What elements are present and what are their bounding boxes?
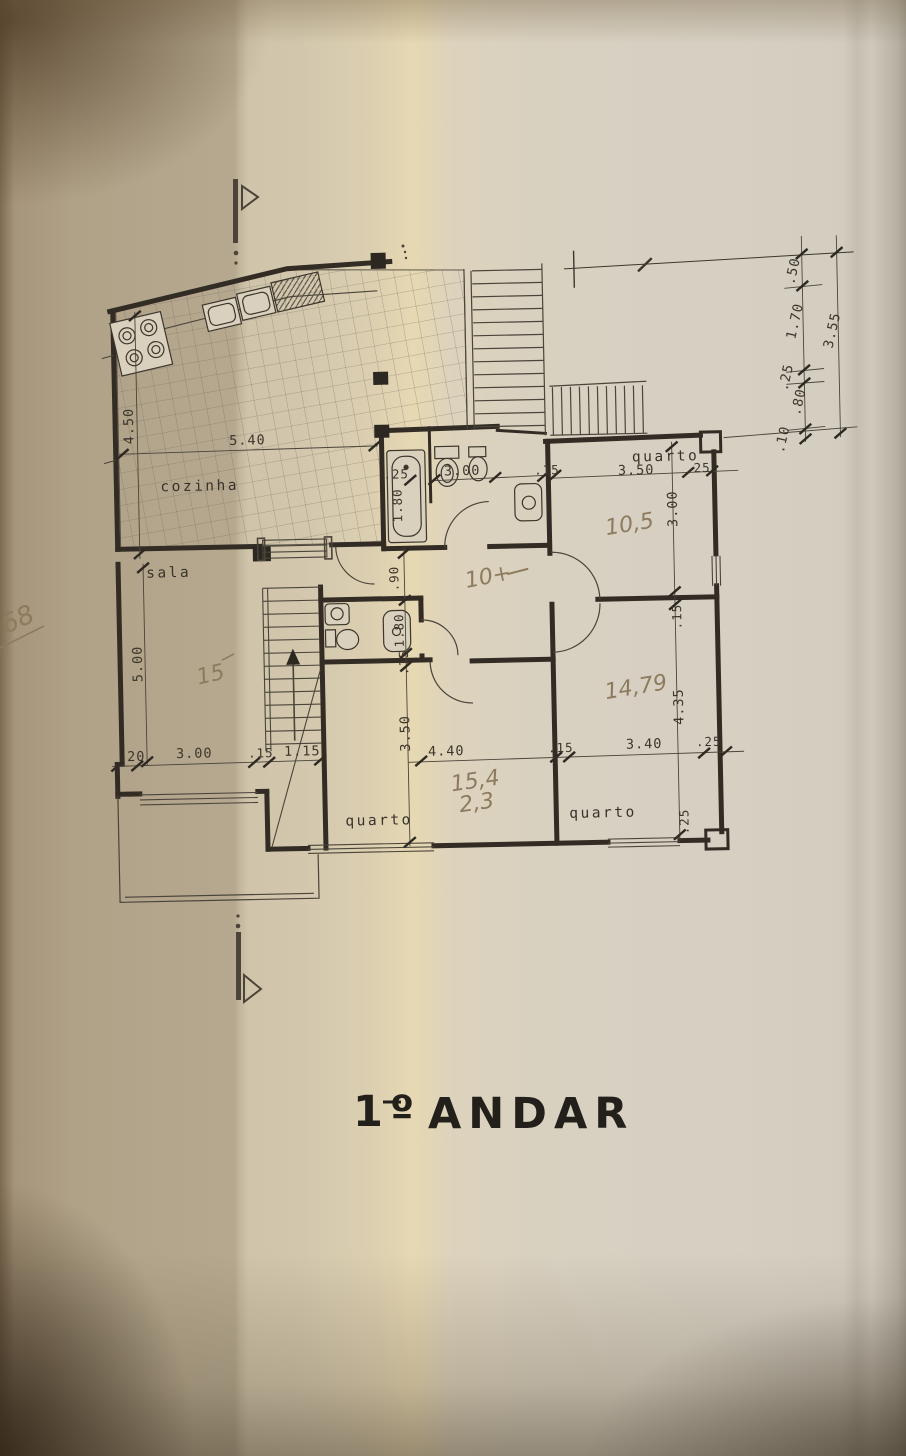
dim-side-chain-0: .50 (782, 256, 804, 286)
dim-bedroom-top-wall-bottom: .15 (669, 604, 685, 630)
dim-chain-left-3: 1.15 (284, 743, 321, 760)
note-living: 15 (194, 660, 227, 691)
title-main: ANDAR (428, 1089, 634, 1139)
room-label-living: sala (146, 565, 191, 582)
scanned-floor-plan-photo: cozinha sala quarto quarto quarto 4.50 5… (0, 0, 906, 1456)
note-bedroom-right: 14,79 (603, 670, 669, 705)
dim-bath-recess: .25 (383, 466, 409, 482)
dim-chain-left-2: .15 (248, 745, 274, 761)
terrace-railing (549, 381, 647, 435)
floor-plan-drawing: cozinha sala quarto quarto quarto 4.50 5… (0, 0, 906, 1456)
dim-bath-tub: 1.80 (389, 488, 405, 522)
room-label-bedroom-right: quarto (569, 805, 637, 822)
note-bedroom-left-2: 2,3 (458, 788, 496, 818)
dim-kitchen-width: 5.40 (229, 432, 266, 449)
fold-mark-bottom (236, 914, 261, 1002)
fold-mark-top (233, 179, 258, 265)
dim-wc-wall: .15 (396, 649, 412, 675)
dim-wc-length: 1.80 (391, 613, 407, 647)
stair-direction-arrow (286, 649, 300, 665)
dim-hall-width: .90 (386, 566, 402, 592)
dim-bedroom-top-wall-right: .25 (685, 460, 711, 476)
dim-bath-wall: .15 (534, 462, 560, 478)
dim-living-depth: 5.00 (130, 646, 147, 683)
room-label-kitchen: cozinha (160, 478, 239, 496)
dim-bath-width: 3.00 (444, 463, 481, 480)
note-margin: 68 (0, 600, 39, 641)
title-prefix: 1º (353, 1087, 421, 1137)
room-label-bedroom-left: quarto (345, 812, 413, 829)
dim-bedroom-top-width: 3.50 (618, 462, 655, 479)
hall-washbasin (514, 483, 542, 521)
dim-bedroom-right-wall-bottom: .25 (676, 809, 692, 835)
dim-chain-left-0: .20 (118, 749, 146, 766)
dim-side-chain-4: .10 (772, 424, 794, 454)
note-living-tick (222, 654, 234, 660)
note-hall: 10+ (463, 560, 513, 594)
datum-mark (564, 245, 855, 288)
dim-chain-right-2: .25 (696, 734, 722, 750)
dim-bedroom-top-depth: 3.00 (665, 490, 682, 527)
dim-chain-right-1: 3.40 (626, 736, 663, 753)
dim-bedroom-right-depth: 4.35 (671, 688, 688, 725)
dim-bedroom-left-width: 4.40 (428, 743, 465, 760)
note-bedroom-top: 10,5 (603, 509, 655, 542)
ink-dots (402, 245, 408, 260)
top-staircase (464, 263, 546, 437)
drawing-title: 1º ANDAR (353, 1087, 634, 1139)
dim-kitchen-depth: 4.50 (121, 408, 138, 445)
dim-bedroom-left-depth: 3.50 (397, 715, 414, 752)
dim-side-chain-total: 3.55 (821, 311, 845, 350)
dim-chain-right-0: .15 (548, 740, 574, 756)
dim-chain-left-1: 3.00 (176, 745, 213, 762)
interior-staircase (263, 587, 326, 847)
